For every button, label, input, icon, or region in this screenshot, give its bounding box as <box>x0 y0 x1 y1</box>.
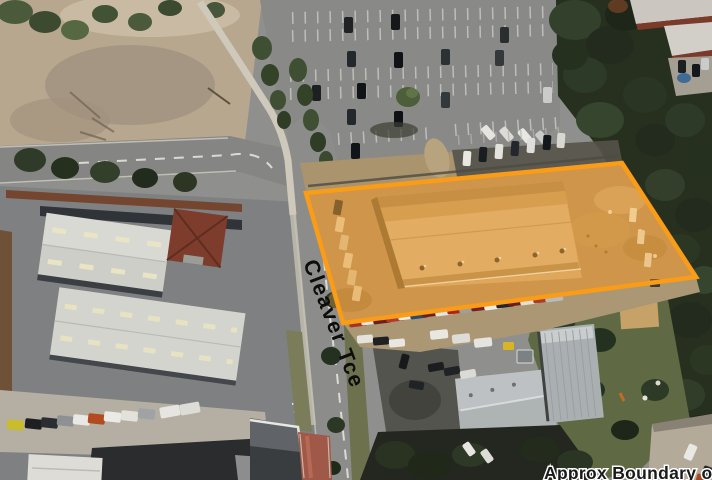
vacant-dirt-lot <box>0 0 262 152</box>
yard-south-central <box>372 342 466 444</box>
disclaimer-label: Approx Boundary only <box>544 463 712 480</box>
aerial-photo-listing: Cleaver Tce Approx Boundary only <box>0 0 712 480</box>
red-roof-building <box>167 209 228 268</box>
aerial-photo: Cleaver Tce Approx Boundary only <box>0 0 712 480</box>
